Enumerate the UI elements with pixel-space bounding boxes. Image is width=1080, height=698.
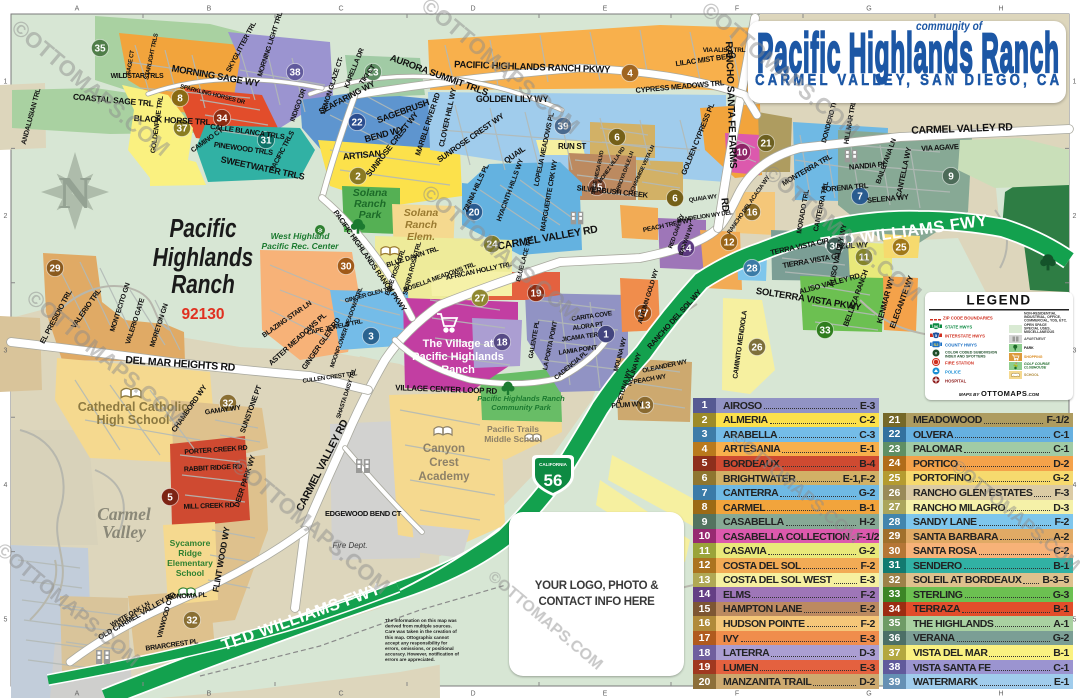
svg-text:F: F [735,691,739,698]
svg-text:F: F [735,6,739,13]
svg-text:D: D [470,691,475,698]
svg-text:EDGEWOOD BEND CT: EDGEWOOD BEND CT [325,509,402,518]
svg-text:Canyon: Canyon [423,443,465,455]
svg-text:38: 38 [289,67,301,78]
svg-text:Fire Dept.: Fire Dept. [332,541,367,550]
svg-text:Pacific Rec. Center: Pacific Rec. Center [261,241,339,251]
svg-text:CALIFORNIA: CALIFORNIA [539,462,567,467]
svg-text:accuracy. However, notificatio: accuracy. However, notification of [385,652,459,657]
svg-text:35: 35 [94,43,106,54]
svg-text:errors, omissions, or position: errors, omissions, or positional [385,646,454,651]
svg-text:3: 3 [1073,348,1077,355]
svg-text:Academy: Academy [418,471,470,483]
svg-text:Elementary: Elementary [167,558,213,568]
svg-text:Middle School: Middle School [484,434,542,444]
svg-text:2: 2 [1073,213,1077,220]
svg-text:West Highland: West Highland [271,231,331,241]
svg-text:1: 1 [603,329,609,340]
svg-text:Pacific Highlands Ranch: Pacific Highlands Ranch [477,394,565,403]
svg-text:56: 56 [544,471,563,490]
svg-text:1: 1 [4,79,8,86]
svg-text:G: G [866,6,871,13]
svg-text:B: B [207,6,212,13]
svg-text:accept any responsibility for: accept any responsibility for [385,640,448,645]
svg-text:32: 32 [186,615,198,626]
svg-text:Ranch: Ranch [441,364,475,376]
svg-text:4: 4 [627,68,633,79]
svg-text:errors are appreciated.: errors are appreciated. [385,657,435,662]
svg-text:6: 6 [614,132,620,143]
svg-text:30: 30 [340,261,352,272]
svg-text:33: 33 [819,325,831,336]
svg-text:H: H [998,6,1003,13]
svg-text:derived from multiple sources.: derived from multiple sources. [385,624,452,629]
svg-text:High School: High School [97,413,170,427]
svg-text:A: A [75,691,80,698]
svg-text:25: 25 [895,242,907,253]
svg-text:WILDSTAR TRLS: WILDSTAR TRLS [111,73,164,80]
svg-text:D: D [470,6,475,13]
svg-text:Community Park: Community Park [491,403,551,412]
svg-text:The information on this map wa: The information on this map was [385,618,457,623]
svg-text:2: 2 [355,171,361,182]
svg-text:3: 3 [4,348,8,355]
svg-text:5: 5 [4,616,8,623]
svg-text:6: 6 [672,193,678,204]
svg-text:E: E [603,6,608,13]
svg-text:B: B [207,691,212,698]
svg-text:A: A [75,6,80,13]
svg-text:N: N [58,167,91,218]
svg-text:1: 1 [1073,79,1077,86]
svg-text:4: 4 [1073,482,1077,489]
svg-text:28: 28 [746,263,758,274]
svg-text:C: C [338,6,343,13]
svg-text:3: 3 [368,331,374,342]
svg-text:C: C [338,691,343,698]
svg-text:S2: S2 [934,342,940,347]
svg-text:29: 29 [49,263,61,274]
svg-text:26: 26 [751,342,763,353]
svg-text:Pacific Highlands: Pacific Highlands [412,351,504,363]
svg-text:92130: 92130 [181,306,224,323]
svg-text:this map. Ottographix cannot: this map. Ottographix cannot [385,635,449,640]
svg-text:27: 27 [474,293,486,304]
svg-text:Crest: Crest [429,457,459,469]
svg-text:8: 8 [177,93,183,104]
svg-text:E: E [603,691,608,698]
svg-text:Carmel: Carmel [97,504,151,524]
svg-text:19: 19 [530,288,542,299]
svg-text:22: 22 [351,117,363,128]
svg-text:Elem.: Elem. [407,231,435,243]
svg-text:RUN ST: RUN ST [558,142,586,151]
svg-text:7: 7 [857,191,863,202]
svg-text:Cathedral Catholic: Cathedral Catholic [78,400,188,414]
svg-text:5: 5 [167,492,173,503]
svg-text:⛳: ⛳ [1013,362,1018,367]
svg-text:School: School [176,568,204,578]
svg-text:Ranch: Ranch [171,270,235,299]
svg-text:21: 21 [760,138,772,149]
svg-text:G: G [866,691,871,698]
svg-text:Highlands: Highlands [153,243,253,272]
svg-text:Care was taken in the creation: Care was taken in the creation of [385,629,457,634]
svg-text:11: 11 [859,252,870,263]
svg-text:Pacific: Pacific [169,214,236,243]
svg-text:Sycamore: Sycamore [170,538,211,548]
svg-text:56: 56 [934,324,939,329]
svg-text:39: 39 [557,121,569,132]
svg-text:Solana: Solana [404,207,439,219]
svg-text:Ridge: Ridge [178,548,202,558]
svg-text:H: H [998,691,1003,698]
svg-text:Park: Park [359,209,383,221]
svg-text:Valley: Valley [102,522,146,542]
svg-text:18: 18 [496,337,508,348]
svg-text:12: 12 [723,237,735,248]
svg-text:GOLDEN LILY WY: GOLDEN LILY WY [476,94,549,104]
svg-text:Ranch: Ranch [405,219,437,231]
svg-text:5: 5 [1073,616,1077,623]
svg-text:4: 4 [4,482,8,489]
svg-text:The Village at: The Village at [423,338,494,350]
svg-text:Pacific Trails: Pacific Trails [487,424,539,434]
svg-text:2: 2 [4,213,8,220]
svg-text:9: 9 [948,171,954,182]
